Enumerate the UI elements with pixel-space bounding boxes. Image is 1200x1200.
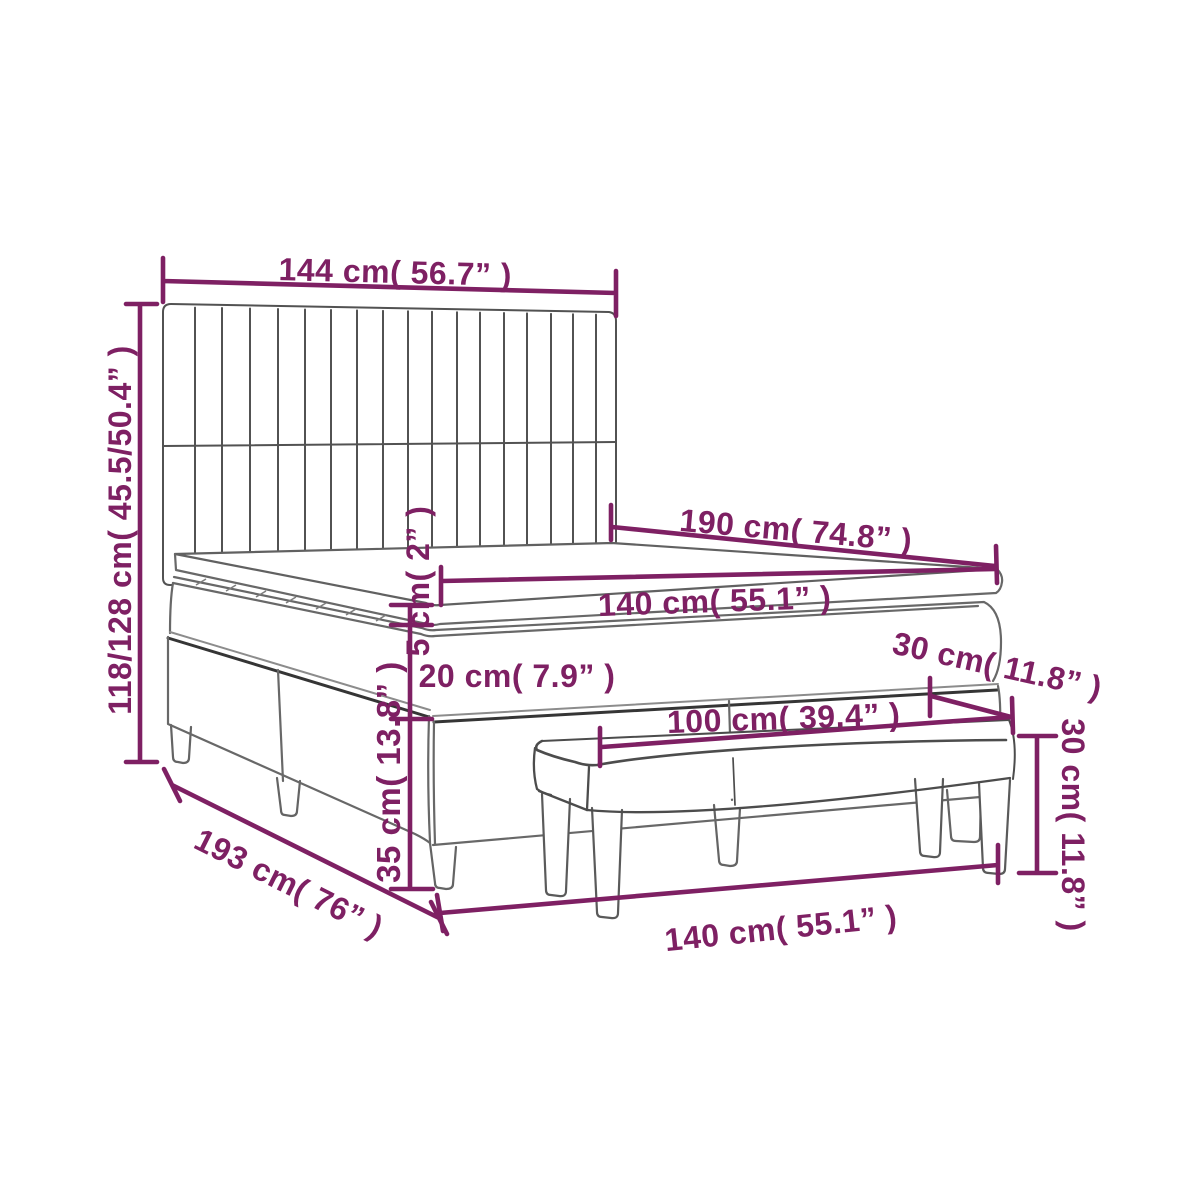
- svg-text:118/128 cm( 45.5/50.4” ): 118/128 cm( 45.5/50.4” ): [102, 345, 138, 715]
- svg-text:5 cm( 2” ): 5 cm( 2” ): [400, 506, 436, 657]
- svg-text:35 cm( 13.8” ): 35 cm( 13.8” ): [370, 661, 407, 883]
- svg-text:144 cm( 56.7” ): 144 cm( 56.7” ): [278, 251, 512, 293]
- svg-text:20 cm( 7.9” ): 20 cm( 7.9” ): [419, 658, 616, 694]
- svg-text:30 cm( 11.8” ): 30 cm( 11.8” ): [1055, 718, 1091, 931]
